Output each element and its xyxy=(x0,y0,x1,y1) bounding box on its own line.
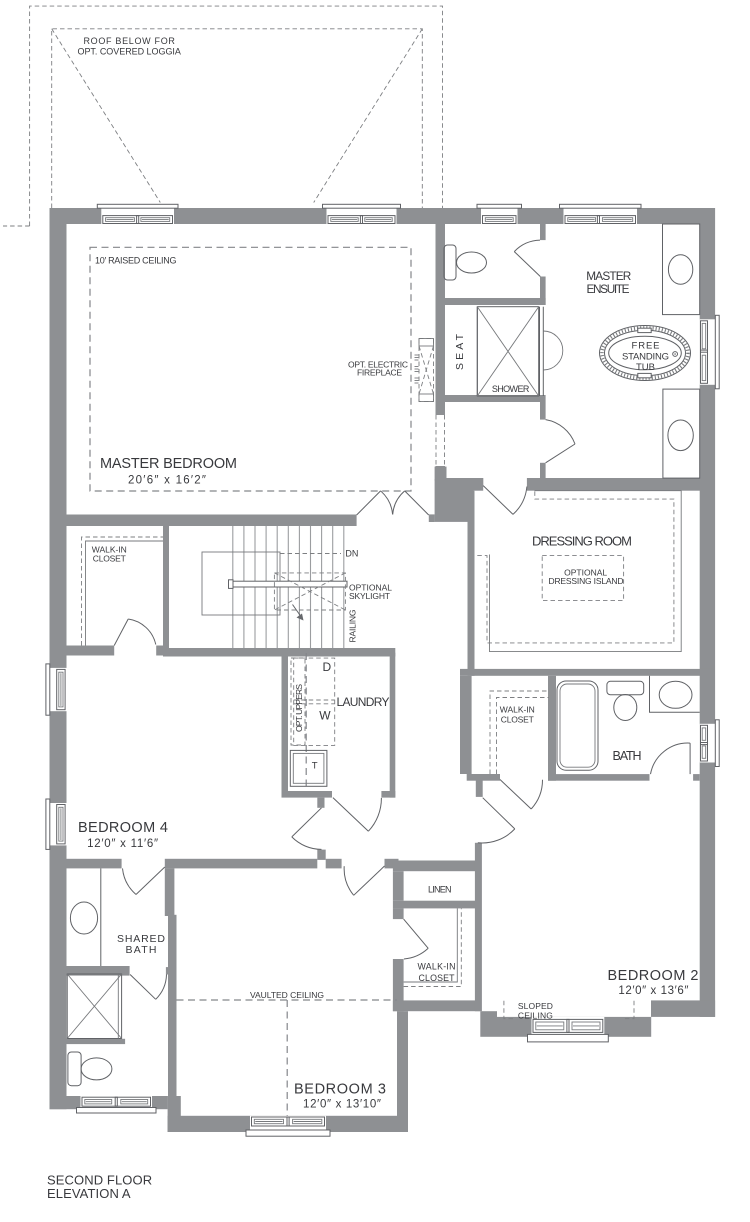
svg-text:ROOF BELOW FOR: ROOF BELOW FOR xyxy=(84,36,176,46)
svg-text:ELEVATION A: ELEVATION A xyxy=(47,1186,131,1201)
svg-text:RAILING: RAILING xyxy=(348,610,358,643)
svg-text:CLOSET: CLOSET xyxy=(501,715,534,725)
svg-text:OPT. COVERED LOGGIA: OPT. COVERED LOGGIA xyxy=(78,47,182,57)
svg-text:FREE: FREE xyxy=(632,341,660,352)
svg-text:SHOWER: SHOWER xyxy=(492,384,530,394)
svg-text:MASTER BEDROOM: MASTER BEDROOM xyxy=(100,456,237,472)
svg-text:SHARED: SHARED xyxy=(117,933,165,945)
svg-text:SLOPED: SLOPED xyxy=(518,1001,553,1011)
svg-text:LAUNDRY: LAUNDRY xyxy=(337,695,390,709)
svg-text:STANDING: STANDING xyxy=(622,352,669,363)
svg-text:BATH: BATH xyxy=(126,944,157,956)
svg-text:MASTER: MASTER xyxy=(586,269,631,283)
svg-text:BEDROOM 4: BEDROOM 4 xyxy=(78,820,168,836)
svg-text:DRESSING ISLAND: DRESSING ISLAND xyxy=(549,576,624,586)
svg-text:12′0″ x 11′6″: 12′0″ x 11′6″ xyxy=(87,838,158,850)
svg-text:WALK-IN: WALK-IN xyxy=(500,705,535,715)
svg-text:ENSUITE: ENSUITE xyxy=(587,282,630,296)
svg-text:BEDROOM 3: BEDROOM 3 xyxy=(294,1082,386,1098)
svg-text:WALK-IN: WALK-IN xyxy=(418,962,456,972)
svg-text:FIREPLACE: FIREPLACE xyxy=(357,367,402,377)
svg-text:LINEN: LINEN xyxy=(428,885,452,895)
svg-text:20′6″ x 16′2″: 20′6″ x 16′2″ xyxy=(128,475,206,487)
svg-text:10′ RAISED CEILING: 10′ RAISED CEILING xyxy=(95,255,177,265)
svg-text:BATH: BATH xyxy=(613,749,642,763)
svg-text:W: W xyxy=(319,708,331,722)
svg-text:12′0″ x 13′6″: 12′0″ x 13′6″ xyxy=(618,985,688,997)
svg-text:BEDROOM 2: BEDROOM 2 xyxy=(608,968,699,984)
svg-text:CLOSET: CLOSET xyxy=(93,554,126,564)
svg-text:DRESSING ROOM: DRESSING ROOM xyxy=(532,534,632,549)
svg-text:SKYLIGHT: SKYLIGHT xyxy=(349,591,390,601)
svg-text:CLOSET: CLOSET xyxy=(419,973,456,983)
svg-text:TUB: TUB xyxy=(636,362,655,373)
svg-text:VAULTED CEILING: VAULTED CEILING xyxy=(250,990,324,1000)
svg-text:T: T xyxy=(312,761,318,772)
svg-text:12′0″ x 13′10″: 12′0″ x 13′10″ xyxy=(303,1099,381,1111)
svg-text:CEILING: CEILING xyxy=(518,1010,553,1020)
svg-text:OPT. UPPERS: OPT. UPPERS xyxy=(294,684,304,732)
svg-text:D: D xyxy=(322,660,331,674)
svg-text:DN: DN xyxy=(345,548,358,558)
